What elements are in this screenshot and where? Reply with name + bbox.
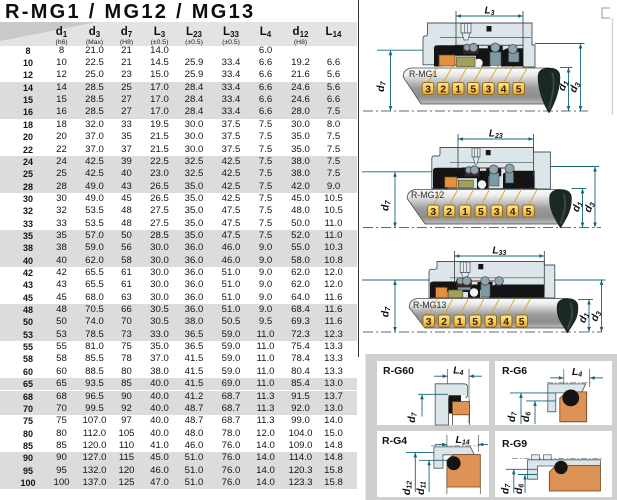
svg-text:R-G4: R-G4 xyxy=(382,435,407,447)
svg-text:3: 3 xyxy=(430,207,436,218)
svg-text:3: 3 xyxy=(425,84,431,95)
svg-text:R-G9: R-G9 xyxy=(502,438,527,450)
svg-text:2: 2 xyxy=(446,207,452,218)
svg-text:L33: L33 xyxy=(492,246,506,258)
svg-text:2: 2 xyxy=(440,84,446,95)
svg-text:d7: d7 xyxy=(380,200,393,211)
svg-text:5: 5 xyxy=(526,207,532,218)
svg-text:R-MG13: R-MG13 xyxy=(413,300,446,310)
svg-text:5: 5 xyxy=(516,84,522,95)
svg-text:2: 2 xyxy=(441,317,447,328)
svg-text:3: 3 xyxy=(426,317,432,328)
svg-text:1: 1 xyxy=(457,317,463,328)
svg-text:R-G6: R-G6 xyxy=(502,365,527,377)
svg-text:5: 5 xyxy=(519,317,525,328)
svg-text:5: 5 xyxy=(478,207,484,218)
svg-text:L23: L23 xyxy=(489,129,503,141)
svg-text:3: 3 xyxy=(488,317,494,328)
svg-text:3: 3 xyxy=(486,84,492,95)
svg-text:3: 3 xyxy=(494,207,500,218)
svg-text:d7: d7 xyxy=(380,306,393,317)
svg-text:1: 1 xyxy=(462,207,468,218)
svg-text:4: 4 xyxy=(510,207,516,218)
svg-text:L3: L3 xyxy=(484,6,494,18)
svg-text:4: 4 xyxy=(501,84,507,95)
svg-text:R-G60: R-G60 xyxy=(383,365,414,377)
svg-text:4: 4 xyxy=(503,317,509,328)
svg-text:d7: d7 xyxy=(375,80,388,91)
svg-text:5: 5 xyxy=(470,84,476,95)
svg-text:5: 5 xyxy=(472,317,478,328)
svg-text:1: 1 xyxy=(455,84,461,95)
